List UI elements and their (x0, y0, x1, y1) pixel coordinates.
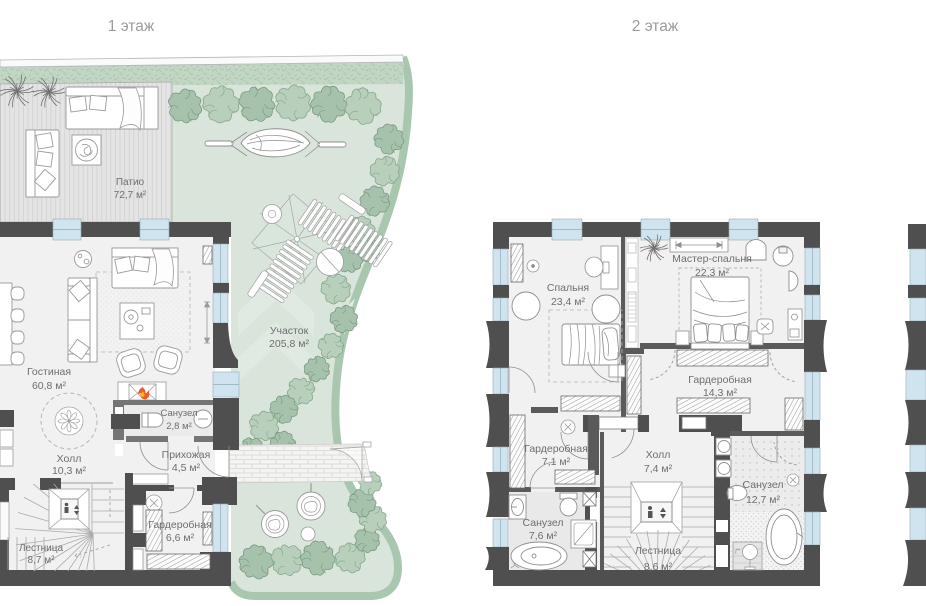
svg-text:Санузел: Санузел (160, 408, 197, 419)
svg-text:Лестница: Лестница (19, 543, 64, 554)
svg-text:22,3 м²: 22,3 м² (695, 267, 730, 279)
svg-text:8,7 м²: 8,7 м² (28, 555, 56, 566)
svg-text:7,6 м²: 7,6 м² (529, 530, 558, 542)
svg-text:Патио: Патио (116, 177, 145, 188)
svg-text:10,3 м²: 10,3 м² (52, 465, 87, 477)
svg-text:8,6 м²: 8,6 м² (644, 561, 673, 573)
svg-text:6,6 м²: 6,6 м² (166, 532, 195, 544)
svg-text:Холл: Холл (646, 449, 671, 461)
svg-text:205,8 м²: 205,8 м² (269, 338, 309, 350)
svg-text:Гостиная: Гостиная (27, 366, 71, 378)
svg-text:2 этаж: 2 этаж (632, 18, 679, 35)
svg-text:Прихожая: Прихожая (162, 449, 211, 461)
svg-text:Участок: Участок (270, 325, 309, 337)
svg-text:1 этаж: 1 этаж (108, 18, 155, 35)
svg-text:Гардеробная: Гардеробная (148, 519, 212, 531)
svg-text:23,4 м²: 23,4 м² (551, 296, 586, 308)
svg-text:12,7 м²: 12,7 м² (746, 494, 781, 506)
svg-text:72,7 м²: 72,7 м² (114, 190, 147, 201)
svg-text:Мастер-спальня: Мастер-спальня (672, 253, 752, 265)
svg-text:14,3 м²: 14,3 м² (703, 387, 738, 399)
svg-text:Лестница: Лестница (635, 545, 681, 557)
svg-text:Спальня: Спальня (547, 282, 589, 294)
svg-text:7,4 м²: 7,4 м² (644, 463, 673, 475)
svg-text:Холл: Холл (57, 453, 82, 465)
svg-text:60,8 м²: 60,8 м² (32, 380, 67, 392)
svg-text:2,8 м²: 2,8 м² (166, 421, 192, 432)
svg-text:Гардеробная: Гардеробная (524, 443, 588, 455)
svg-text:Санузел: Санузел (743, 479, 784, 491)
svg-text:4,5 м²: 4,5 м² (172, 462, 201, 474)
svg-text:Санузел: Санузел (523, 517, 564, 529)
svg-text:Гардеробная: Гардеробная (688, 374, 752, 386)
svg-text:7,1 м²: 7,1 м² (542, 456, 571, 468)
